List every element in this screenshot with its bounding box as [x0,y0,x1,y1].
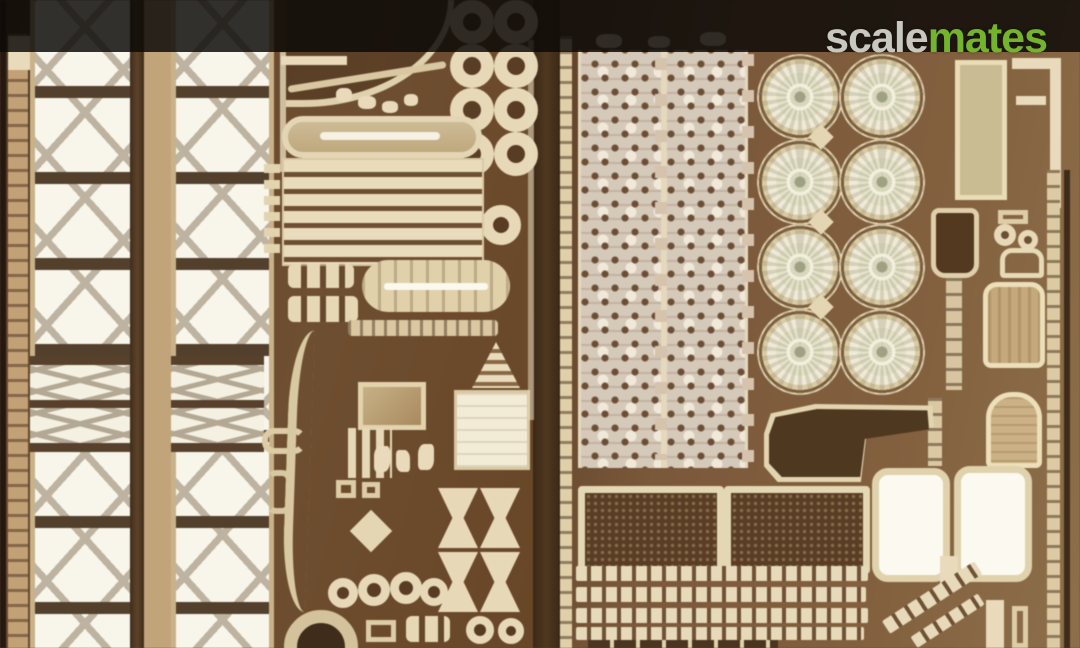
ladder-strip [576,566,868,581]
girder-right [171,0,274,648]
inner-edge-strip [280,52,286,172]
lattice-band-left-girder [30,356,130,452]
bracket-strip [1016,96,1046,105]
white-panel [954,466,1032,582]
small-blob-part [336,88,352,102]
etched-ring [498,618,524,644]
paddle-part [931,208,979,278]
mesh-screen-frame [578,486,724,574]
scalemates-watermark: scalemates [825,17,1047,60]
photo-stage: scalemates [0,0,1080,648]
leaf-spring-highlight [384,283,488,290]
mid-sprue-strip [144,0,171,648]
tiny-part [374,446,390,472]
center-rail [130,0,144,648]
photoetch-frets-photo [0,0,1080,648]
small-frame-part [362,482,380,498]
door-panel-part [983,282,1045,368]
etched-ring [1018,230,1038,250]
right-edge-gap [1064,170,1070,648]
tiny-part [418,444,434,470]
chain-links-row [288,264,354,288]
small-blob-part [358,96,376,109]
slat-stack [282,158,484,266]
road-wheel [757,309,843,395]
etched-ring [358,574,390,606]
photo-left-edge [0,0,6,648]
sprue-strip [8,34,28,648]
bright-panel [454,390,530,470]
mini-bracket [998,210,1028,224]
tombstone-panel-part [986,392,1042,468]
small-frame-part [336,480,356,498]
fret-gap-divider [533,0,560,648]
ladder-strip [576,608,868,623]
tiny-part [396,450,410,472]
etched-ring [994,224,1016,246]
small-blob-part [382,101,398,113]
textured-panel [358,382,426,430]
ladder-strip [576,587,866,602]
etched-ring [466,616,494,644]
etched-ring [390,572,422,604]
tall-rectangle-part [955,60,1007,200]
comb-strip [264,164,280,258]
watermark-mates-text: mates [928,14,1047,62]
mesh-screen-frame [724,486,870,574]
right-edge-strip [1047,170,1060,648]
cell-strip [588,640,778,648]
bottom-right-bar [986,600,1004,648]
road-wheel [839,224,925,310]
girder-left [30,0,140,648]
track-tread-strip-left [578,50,664,468]
road-wheel [839,54,925,140]
road-wheel [839,139,925,225]
track-tread-strip-right [664,50,748,468]
small-frame-part [366,620,396,642]
road-wheel [757,54,843,140]
watermark-scale-text: scale [825,14,928,62]
road-wheel [839,309,925,395]
road-wheel [757,224,843,310]
bottom-right-frame [1012,606,1028,648]
ladder-strip [576,627,864,640]
sprue-nub-strip [742,54,754,464]
sprue-nub-strip [655,58,667,460]
road-wheel [757,139,843,225]
lattice-band-right-girder [171,356,264,452]
fender-tab-part [281,56,347,65]
fret-edge-strip [560,36,572,648]
etched-ring [328,578,358,608]
arched-frame-part [1000,248,1044,278]
handle-strip [946,278,962,390]
white-panel [872,468,950,582]
small-blob-part [404,94,418,106]
fret-edge-strip [528,40,534,420]
etched-ring [481,205,521,245]
scallop-row [348,320,498,336]
small-dotted-part [406,616,450,642]
chain-links-row [288,296,358,322]
bone-highlight [320,132,440,140]
